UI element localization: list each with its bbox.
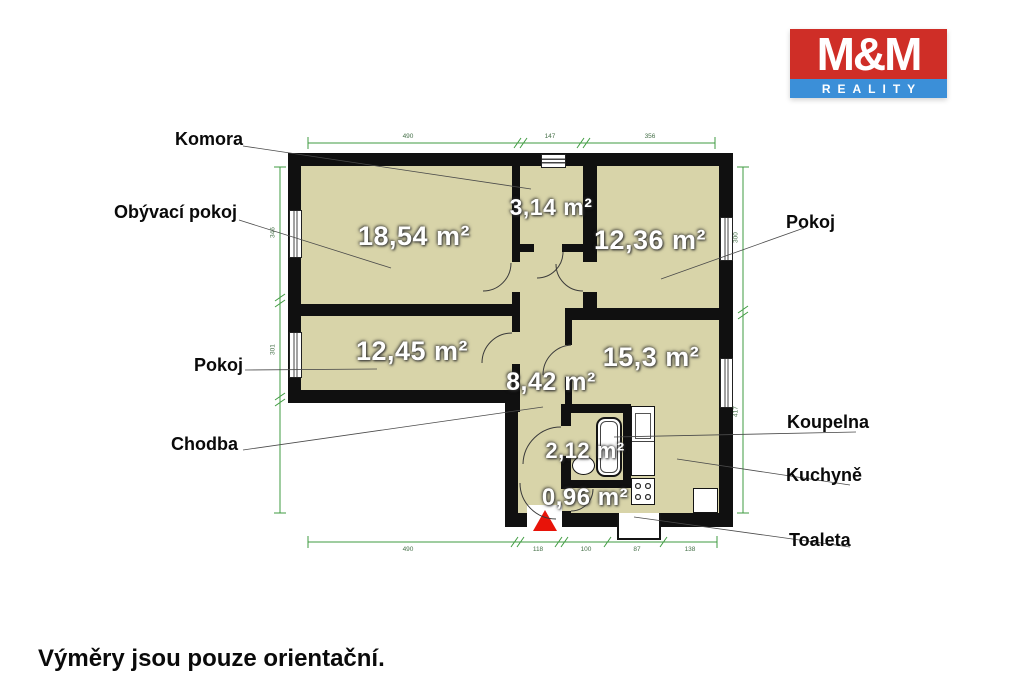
area-label-storage: 3,14 m² [451, 194, 651, 221]
dim-top-2: 147 [530, 133, 570, 140]
window-storage [541, 154, 566, 168]
logo-brand-name: M&M [790, 29, 947, 79]
kitchen-door-notch [617, 513, 661, 540]
label-hall: Chodba [130, 434, 238, 455]
dim-top-3: 356 [630, 133, 670, 140]
floorplan-page: 18,54 m² 3,14 m² 12,36 m² 12,45 m² 15,3 … [0, 0, 1024, 683]
dim-right-1: 300 [733, 218, 740, 258]
disclaimer-note: Výměry jsou pouze orientační. [38, 645, 385, 673]
label-storage: Komora [110, 129, 243, 150]
dim-top-1: 490 [388, 133, 428, 140]
dim-right-2: 417 [733, 392, 740, 432]
label-bedroom-right: Pokoj [786, 212, 835, 233]
window-bedroom-left [289, 332, 302, 378]
area-label-hall: 8,42 m² [451, 368, 651, 397]
window-living [289, 210, 302, 258]
logo-tagline: REALITY [790, 79, 947, 98]
label-kitchen: Kuchyně [786, 465, 862, 486]
label-living: Obývací pokoj [100, 202, 237, 223]
dim-left-2: 301 [270, 330, 277, 370]
dim-bottom-5: 138 [670, 546, 710, 553]
area-label-toilet: 0,96 m² [485, 484, 685, 512]
label-bathroom: Koupelna [787, 412, 869, 433]
wall-bath-top [561, 404, 631, 413]
mm-reality-logo: M&M REALITY [790, 29, 947, 98]
area-label-living: 18,54 m² [314, 221, 514, 252]
door-opening-living [510, 262, 522, 292]
area-label-bedroom-left: 12,45 m² [312, 336, 512, 367]
door-opening-bedroom-right [583, 262, 598, 292]
area-label-bedroom-right: 12,36 m² [550, 225, 750, 256]
dim-bottom-1: 490 [388, 546, 428, 553]
dim-left-1: 346 [270, 213, 277, 253]
label-toilet: Toaleta [789, 530, 851, 551]
dim-bottom-4: 87 [617, 546, 657, 553]
fridge [693, 488, 718, 513]
dim-bottom-2: 118 [518, 546, 558, 553]
dim-bottom-3: 100 [566, 546, 606, 553]
area-label-bathroom: 2,12 m² [485, 438, 685, 464]
entrance-arrow-icon [533, 510, 557, 531]
label-bedroom-left: Pokoj [140, 355, 243, 376]
